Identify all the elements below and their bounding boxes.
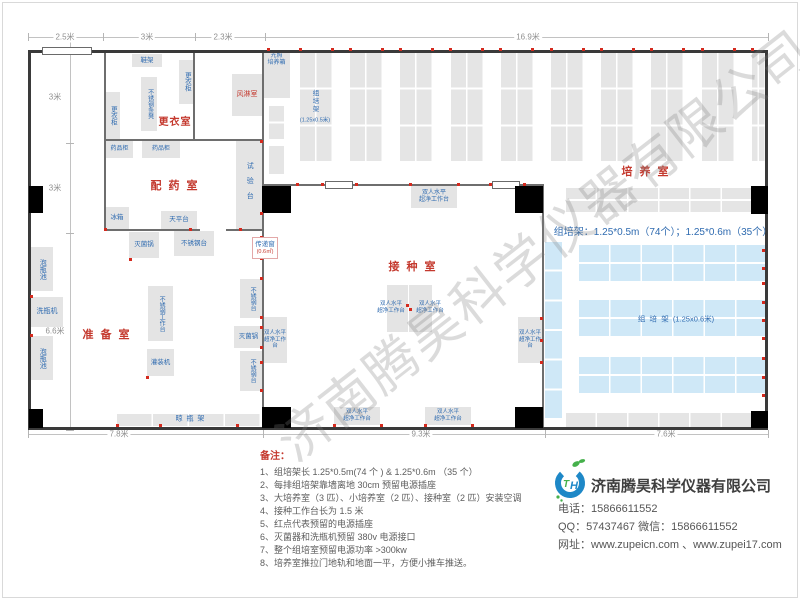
note-item: 5、红点代表预留的电源插座	[260, 518, 522, 531]
structural-column	[262, 407, 291, 428]
annotation-label: 组 培 架 (1.25x0.6米)	[638, 314, 714, 323]
power-socket-dot	[762, 394, 765, 397]
equipment-box: 洗瓶机	[31, 297, 63, 327]
power-socket-dot	[349, 48, 352, 51]
notes-list: 1、组培架长 1.25*0.5m(74 个 ) & 1.25*0.6m （35 …	[260, 466, 522, 570]
structural-column	[262, 186, 291, 213]
company-name: 济南腾昊科学仪器有限公司	[591, 475, 771, 496]
equipment-box: 泡瓶池	[31, 336, 53, 380]
power-socket-dot	[104, 228, 107, 231]
power-socket-dot	[260, 389, 263, 392]
power-socket-dot	[189, 228, 192, 231]
power-socket-dot	[399, 48, 402, 51]
pass-through-size: (0.6㎡)	[257, 249, 274, 255]
power-socket-dot	[239, 228, 242, 231]
power-socket-dot	[406, 304, 409, 307]
culture-rack	[579, 357, 768, 395]
equipment-box: 鞋架	[132, 54, 162, 67]
door-symbol	[42, 47, 92, 55]
power-socket-dot	[762, 319, 765, 322]
wall	[28, 50, 768, 53]
power-socket-dot	[260, 326, 263, 329]
wall	[542, 184, 544, 428]
power-socket-dot	[355, 183, 358, 186]
power-socket-dot	[600, 48, 603, 51]
power-socket-dot	[409, 183, 412, 186]
power-socket-dot	[762, 282, 765, 285]
dimension-tick	[66, 430, 74, 431]
power-socket-dot	[751, 48, 754, 51]
logo-letter-h: H	[570, 480, 579, 492]
power-socket-dot	[260, 140, 263, 143]
power-socket-dot	[333, 424, 336, 427]
power-socket-dot	[146, 376, 149, 379]
power-socket-dot	[129, 258, 132, 261]
power-socket-dot	[457, 183, 460, 186]
note-item: 2、每排组培架靠墙离地 30cm 预留电源插座	[260, 479, 522, 492]
power-socket-dot	[449, 48, 452, 51]
power-socket-dot	[236, 424, 239, 427]
structural-column	[515, 407, 543, 428]
culture-rack	[579, 245, 768, 283]
equipment-box: 药品柜	[142, 141, 180, 158]
equipment-box: 双人水平 超净工作台	[411, 186, 457, 208]
dimension-line-left	[70, 42, 71, 430]
dimension-tick	[265, 33, 266, 41]
pass-through-window: 传递窗(0.6㎡)	[252, 237, 278, 259]
equipment-box: 灭菌锅	[129, 232, 159, 258]
power-socket-dot	[733, 48, 736, 51]
culture-rack-strip	[651, 53, 684, 163]
wall	[104, 52, 106, 230]
power-socket-dot	[331, 48, 334, 51]
culture-rack	[269, 106, 284, 141]
equipment-box: 灌装机	[147, 349, 174, 376]
power-socket-dot	[424, 424, 427, 427]
dimension-label: 9.3米	[409, 429, 432, 440]
wall	[765, 50, 768, 430]
structural-column	[29, 186, 43, 213]
wall	[28, 427, 768, 430]
equipment-box: 不锈钢台	[174, 231, 214, 256]
power-socket-dot	[632, 48, 635, 51]
power-socket-dot	[499, 48, 502, 51]
culture-rack-strip	[400, 53, 433, 163]
structural-column	[751, 186, 768, 214]
power-socket-dot	[489, 183, 492, 186]
equipment-box: 更衣柜	[105, 92, 120, 139]
power-socket-dot	[481, 48, 484, 51]
equipment-box: 不锈钢工作台	[148, 286, 173, 341]
culture-rack-strip	[702, 53, 735, 163]
equipment-box: 风淋室	[232, 74, 262, 116]
equipment-box: 光照 培养箱	[263, 53, 290, 98]
room-label: 配 药 室	[150, 180, 199, 194]
wall	[104, 229, 200, 231]
annotation-label: 双人水平 超净工作台	[377, 301, 405, 315]
equipment-box: 双人水平 超净工作台	[263, 317, 287, 363]
power-socket-dot	[409, 308, 412, 311]
notes-section: 备注： 1、组培架长 1.25*0.5m(74 个 ) & 1.25*0.6m …	[260, 447, 522, 570]
power-socket-dot	[381, 48, 384, 51]
dimension-tick	[768, 33, 769, 41]
equipment-box: 不锈钢台	[240, 351, 263, 391]
wall	[226, 229, 264, 231]
dimension-label: 2.5米	[53, 32, 76, 43]
note-item: 4、接种工作台长为 1.5 米	[260, 505, 522, 518]
power-socket-dot	[30, 295, 33, 298]
dimension-tick	[28, 430, 29, 438]
equipment-box: 泡瓶池	[31, 247, 53, 291]
power-socket-dot	[267, 48, 270, 51]
culture-rack-strip	[451, 53, 484, 163]
power-socket-dot	[540, 317, 543, 320]
power-socket-dot	[540, 361, 543, 364]
dimension-label: 7.6米	[654, 429, 677, 440]
equipment-box: 双人水平 超净工作台	[425, 407, 471, 425]
equipment-box: 双人水平 超净工作台	[334, 407, 380, 425]
culture-rack-strip	[501, 53, 534, 163]
room-label: 培 养 室	[621, 166, 670, 180]
equipment-box: 试验台	[236, 139, 262, 230]
power-socket-dot	[431, 48, 434, 51]
equipment-box: 灭菌锅	[234, 326, 263, 348]
culture-rack	[566, 188, 753, 214]
equipment-box: 不锈钢台	[240, 279, 263, 318]
power-socket-dot	[550, 48, 553, 51]
dimension-tick	[768, 430, 769, 438]
culture-rack	[545, 242, 562, 420]
power-socket-dot	[260, 346, 263, 349]
annotation-label: 晾 瓶 架	[176, 416, 205, 425]
wall	[104, 139, 264, 141]
dimension-label: 3米	[47, 183, 63, 194]
dimension-label: 3米	[47, 92, 63, 103]
power-socket-dot	[30, 334, 33, 337]
power-socket-dot	[380, 424, 383, 427]
company-qq-wechat: QQ：57437467 微信：15866611552	[558, 518, 738, 534]
power-socket-dot	[762, 376, 765, 379]
power-socket-dot	[650, 48, 653, 51]
equipment-box: 更衣柜	[179, 60, 194, 104]
dimension-label: 3米	[139, 32, 155, 43]
dimension-label: 7.8米	[107, 429, 130, 440]
dimension-label: 6.6米	[43, 326, 66, 337]
power-socket-dot	[260, 316, 263, 319]
dimension-tick	[195, 33, 196, 41]
pass-through-label: 传递窗	[255, 241, 275, 248]
company-website: 网址：www.zupeicn.com 、www.zupei17.com	[558, 536, 782, 552]
culture-rack-strip	[752, 53, 766, 163]
logo-letter-t: T	[563, 479, 570, 490]
culture-rack	[269, 146, 284, 174]
note-item: 8、培养室推拉门地轨和地面一平，方便小推车推送。	[260, 557, 522, 570]
power-socket-dot	[762, 249, 765, 252]
culture-rack	[566, 413, 753, 427]
power-socket-dot	[540, 339, 543, 342]
dimension-tick	[545, 430, 546, 438]
equipment-box: 双人水平 超净工作台	[518, 317, 542, 363]
power-socket-dot	[260, 361, 263, 364]
culture-rack-strip	[601, 53, 634, 163]
power-socket-dot	[296, 183, 299, 186]
power-socket-dot	[582, 48, 585, 51]
power-socket-dot	[260, 277, 263, 280]
culture-rack-strip	[350, 53, 383, 163]
power-socket-dot	[762, 301, 765, 304]
dimension-tick	[66, 143, 74, 144]
power-socket-dot	[321, 183, 324, 186]
power-socket-dot	[682, 48, 685, 51]
power-socket-dot	[299, 48, 302, 51]
structural-column	[515, 186, 543, 213]
structural-column	[29, 409, 43, 428]
power-socket-dot	[260, 212, 263, 215]
dimension-tick	[103, 33, 104, 41]
wall	[193, 52, 195, 140]
power-socket-dot	[762, 357, 765, 360]
dimension-label: 16.9米	[514, 32, 542, 43]
note-item: 7、整个组培室预留电源功率 >300kw	[260, 544, 522, 557]
power-socket-dot	[116, 424, 119, 427]
power-socket-dot	[531, 48, 534, 51]
dimension-tick	[28, 33, 29, 41]
structural-column	[751, 411, 768, 428]
equipment-box: 药品柜	[106, 141, 133, 158]
annotation-label: (1.25x0.5米)	[300, 118, 330, 125]
power-socket-dot	[762, 337, 765, 340]
room-label: 准 备 室	[82, 329, 131, 343]
power-socket-dot	[762, 267, 765, 270]
company-logo-icon: T H	[552, 457, 590, 503]
equipment-box: 冰箱	[105, 207, 129, 229]
power-socket-dot	[159, 424, 162, 427]
power-socket-dot	[523, 183, 526, 186]
wall	[28, 50, 31, 430]
door-symbol	[325, 181, 353, 189]
note-item: 3、大培养室（3 匹）、小培养室（2 匹）、接种室（2 匹）安装空调	[260, 492, 522, 505]
note-item: 6、灭菌器和洗瓶机预留 380v 电源接口	[260, 531, 522, 544]
power-socket-dot	[701, 48, 704, 51]
company-phone: 电话：15866611552	[558, 500, 657, 516]
dimension-tick	[263, 430, 264, 438]
notes-title: 备注：	[260, 447, 522, 462]
annotation-label: 组培架：1.25*0.5m（74个）；1.25*0.6m（35个）	[554, 227, 772, 240]
note-item: 1、组培架长 1.25*0.5m(74 个 ) & 1.25*0.6m （35 …	[260, 466, 522, 479]
dimension-tick	[66, 233, 74, 234]
annotation-label: 组 培 架	[313, 90, 320, 114]
culture-rack-strip	[551, 53, 584, 163]
equipment-box: 不锈钢条凳	[141, 77, 157, 131]
dimension-label: 2.3米	[211, 32, 234, 43]
room-label: 更衣室	[159, 117, 192, 130]
annotation-label: 双人水平 超净工作台	[416, 301, 444, 315]
room-label: 接 种 室	[388, 261, 437, 275]
equipment-box: 天平台	[161, 211, 197, 229]
power-socket-dot	[471, 424, 474, 427]
